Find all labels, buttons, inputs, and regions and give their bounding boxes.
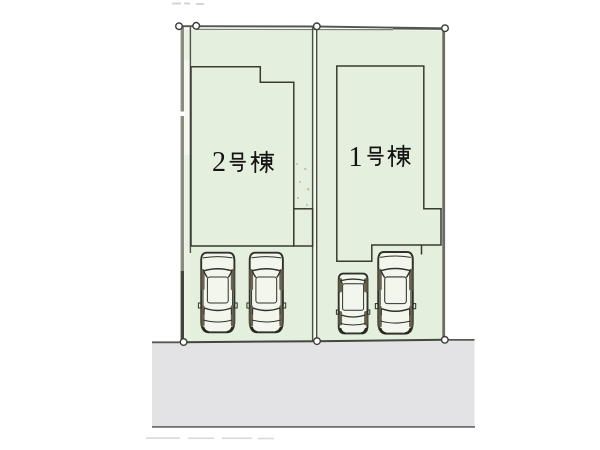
svg-text:2: 2 [212, 147, 226, 178]
svg-text:1: 1 [349, 142, 363, 173]
